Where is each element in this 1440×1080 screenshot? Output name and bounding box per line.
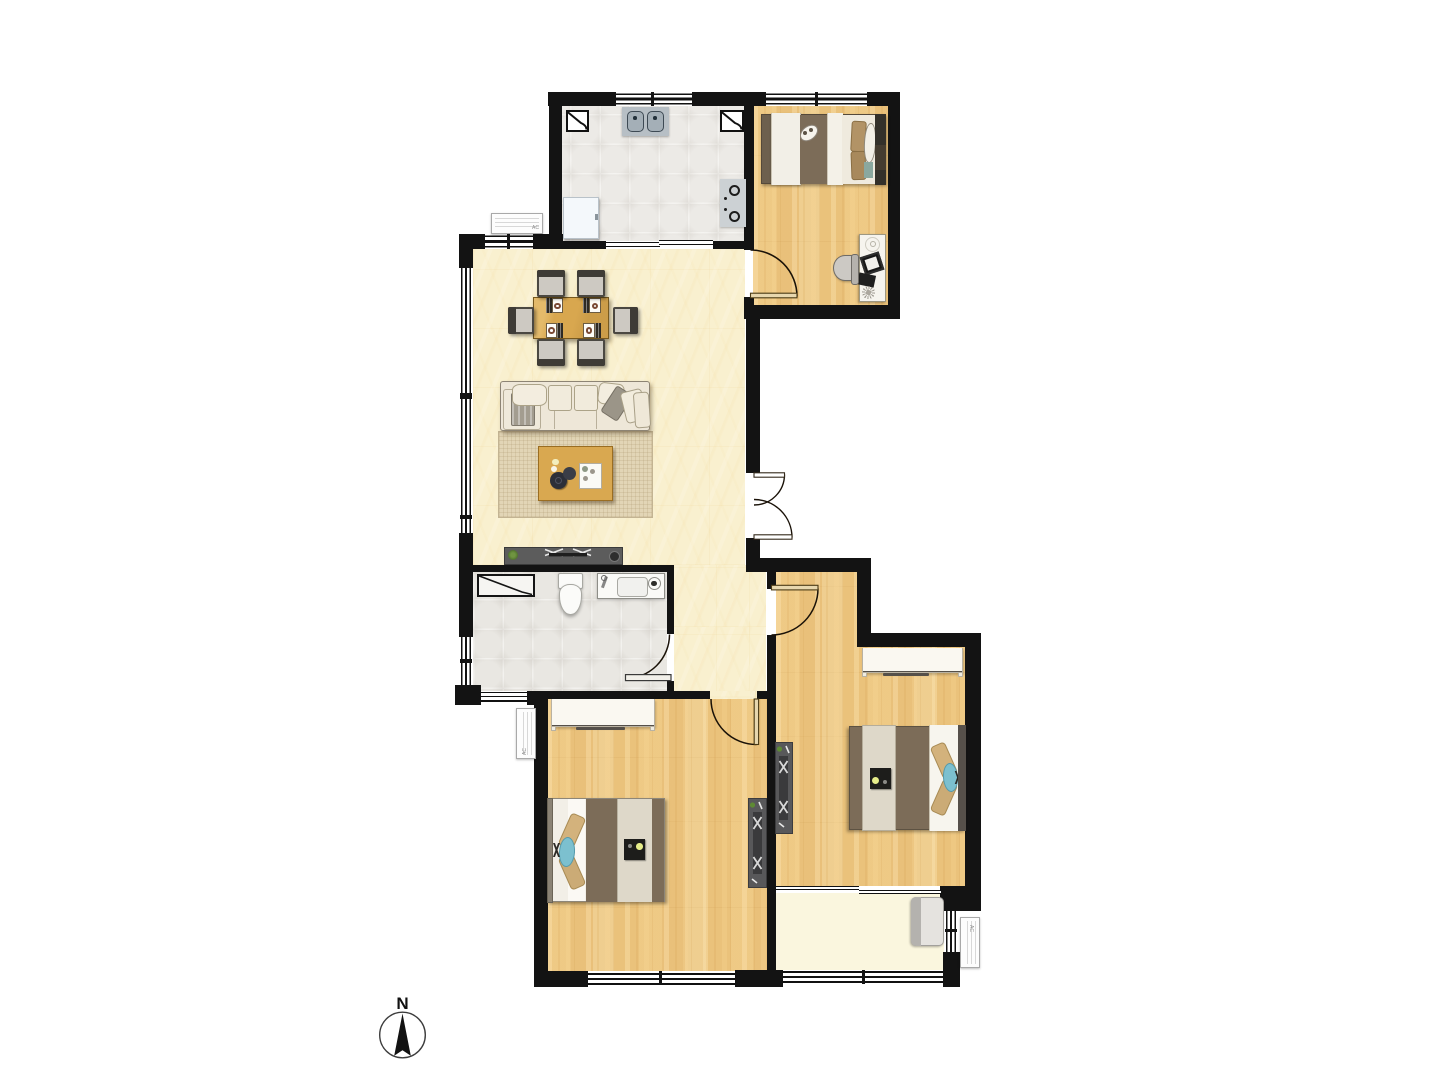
svg-text:N: N: [396, 994, 408, 1013]
